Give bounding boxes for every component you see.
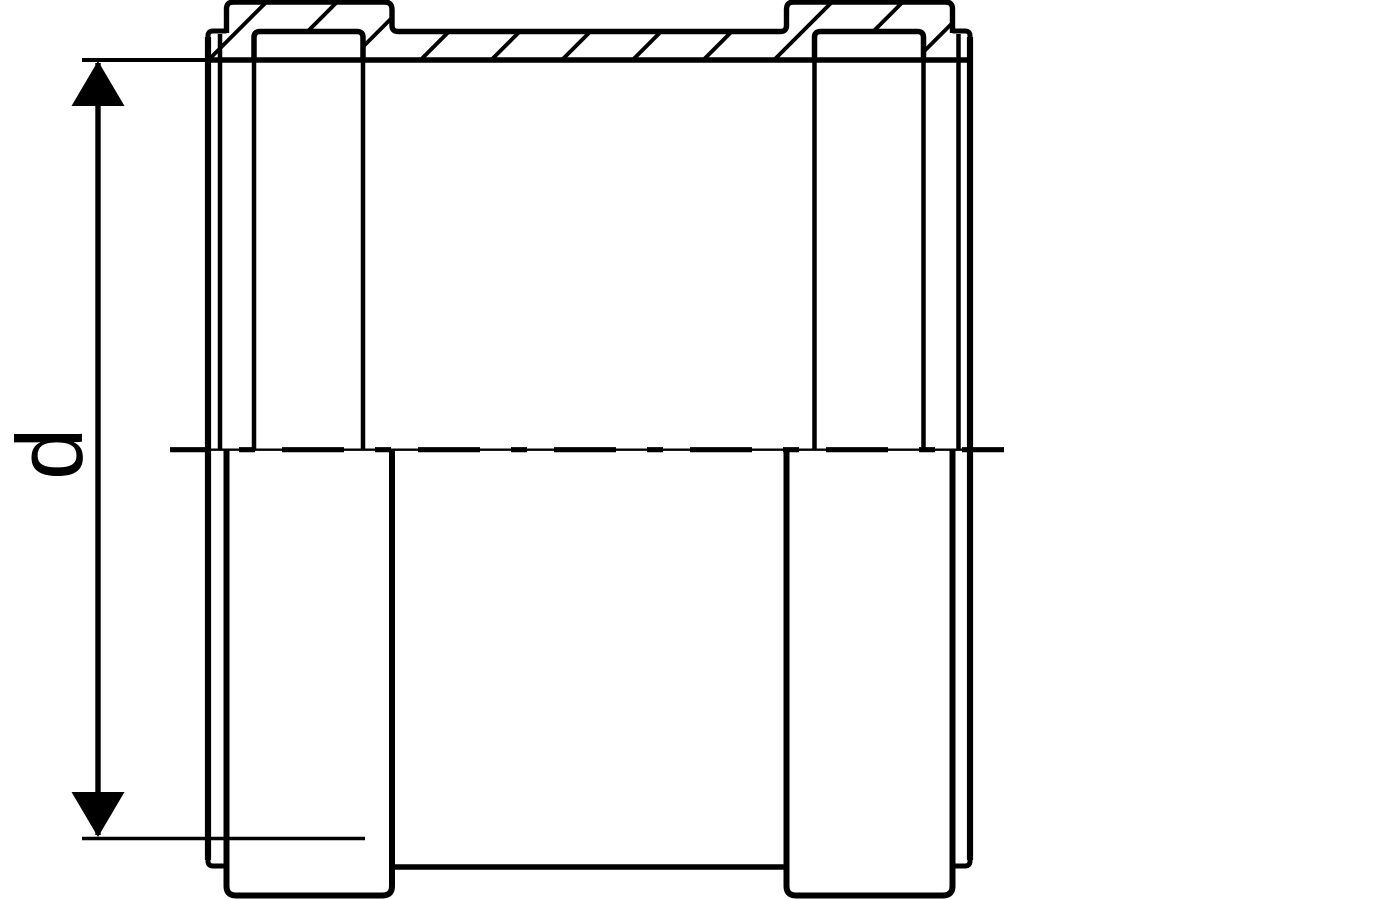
svg-text:d: d — [0, 428, 102, 480]
